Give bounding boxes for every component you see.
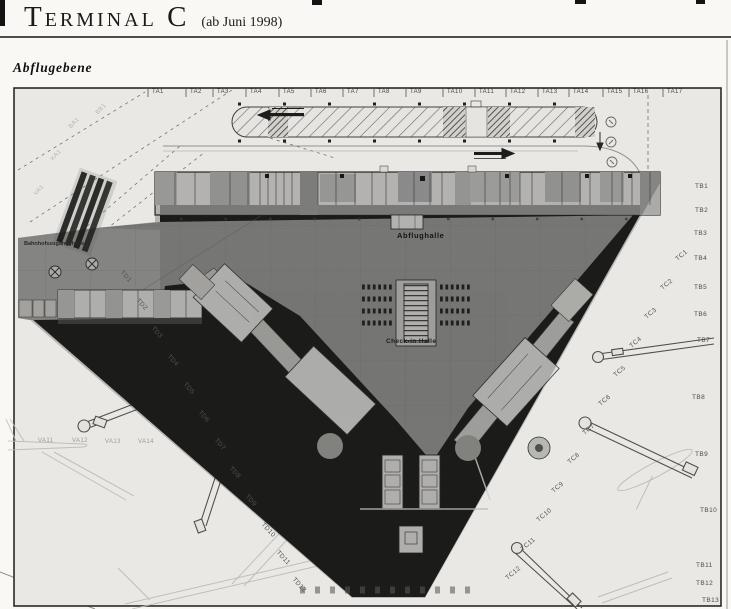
stand-label-tb9: TB9 — [695, 452, 708, 459]
checkin-hall-label: Check-in Halle — [386, 339, 436, 346]
stand-label-tb6: TB6 — [694, 312, 707, 319]
title-suffix: (ab Juni 1998) — [189, 15, 282, 30]
stand-label-ta16: TA16 — [633, 89, 649, 95]
stand-label-tb3: TB3 — [694, 231, 707, 238]
stand-label-ta15: TA15 — [607, 89, 623, 95]
stand-label-tb10: TB10 — [700, 508, 717, 515]
stand-label-ta13: TA13 — [542, 89, 558, 95]
stand-label-va11: VA11 — [38, 438, 53, 444]
title-rule — [0, 36, 731, 38]
station-hall-label: Bahnhofszugangshalle — [24, 242, 84, 248]
stand-label-tb4: TB4 — [694, 256, 707, 263]
paper-grain — [14, 88, 721, 606]
stand-label-ta1: TA1 — [152, 89, 164, 95]
stand-label-tb5: TB5 — [694, 285, 707, 292]
stand-label-va12: VA12 — [72, 438, 88, 444]
stand-label-ta14: TA14 — [573, 89, 589, 95]
stand-label-tb12: TB12 — [696, 581, 713, 588]
page-title: Terminal C(ab Juni 1998) — [24, 1, 282, 34]
stand-label-ta6: TA6 — [315, 89, 327, 95]
stand-label-ta9: TA9 — [410, 89, 422, 95]
stand-label-ta4: TA4 — [250, 89, 262, 95]
stand-label-tb8: TB8 — [692, 395, 705, 402]
stand-label-tb1: TB1 — [695, 184, 708, 191]
stand-label-ta17: TA17 — [667, 89, 683, 95]
stand-label-tb7: TB7 — [697, 338, 710, 345]
stand-label-ta2: TA2 — [190, 89, 202, 95]
departure-hall-label: Abflughalle — [397, 232, 444, 240]
stand-label-tb11: TB11 — [696, 563, 713, 570]
stand-label-ta3: TA3 — [217, 89, 229, 95]
stand-label-ta12: TA12 — [510, 89, 526, 95]
stand-label-ta11: TA11 — [479, 89, 494, 95]
title-main: Terminal C — [24, 1, 189, 33]
stand-label-ta7: TA7 — [347, 89, 359, 95]
stand-label-va14: VA14 — [138, 439, 154, 445]
stand-label-ta10: TA10 — [447, 89, 463, 95]
scanned-floor-plan-page: Terminal C(ab Juni 1998) Abflugebene TA1… — [0, 0, 731, 609]
stand-label-ta5: TA5 — [283, 89, 295, 95]
stand-label-tb13: TB13 — [702, 598, 719, 605]
stand-label-tb2: TB2 — [695, 208, 708, 215]
stand-label-va13: VA13 — [105, 439, 121, 445]
stand-label-ta8: TA8 — [378, 89, 390, 95]
level-label: Abflugebene — [13, 60, 92, 76]
